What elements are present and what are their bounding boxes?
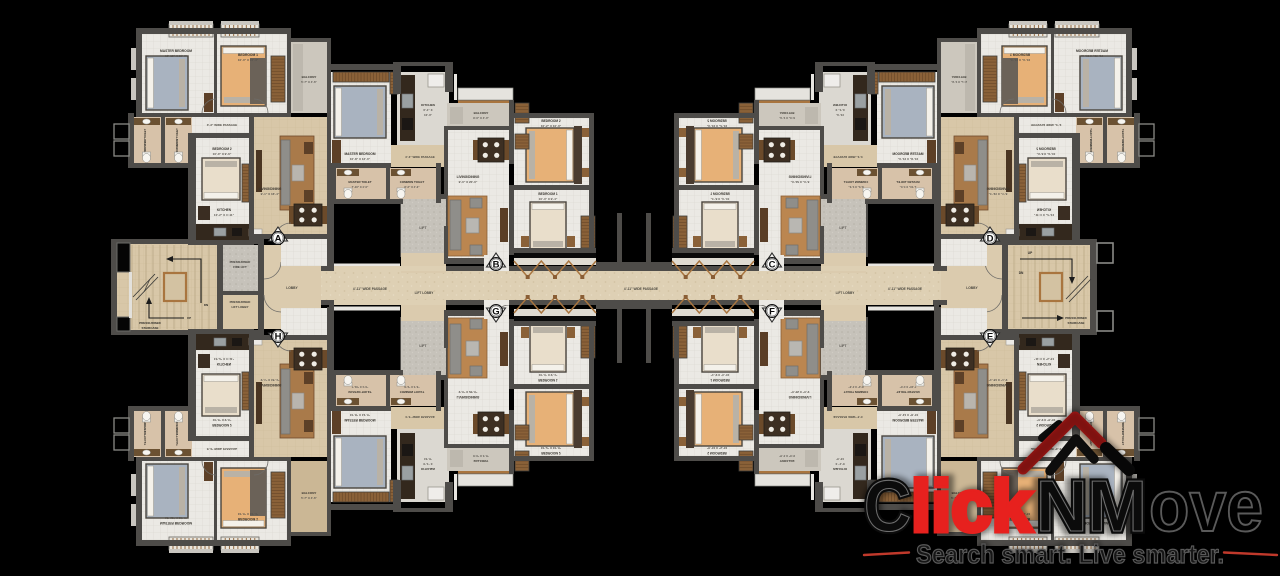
- svg-text:LIFT LOBBY: LIFT LOBBY: [231, 305, 248, 309]
- svg-text:KITCHEN: KITCHEN: [217, 208, 232, 212]
- svg-text:BALCONY: BALCONY: [474, 111, 489, 115]
- svg-text:10’-0” X 10’-4”: 10’-0” X 10’-4”: [238, 58, 259, 62]
- svg-text:BALCONY: BALCONY: [302, 491, 317, 495]
- svg-text:F: F: [769, 306, 775, 317]
- svg-text:3’-3” WIDE PASSAGE: 3’-3” WIDE PASSAGE: [405, 155, 435, 159]
- svg-text:PRESSURISED: PRESSURISED: [139, 321, 161, 325]
- svg-text:5’-7” X 4’-6”: 5’-7” X 4’-6”: [301, 496, 317, 500]
- svg-text:4’-11” WIDE PASSAGE: 4’-11” WIDE PASSAGE: [624, 287, 658, 291]
- svg-text:10’-11” X 10’-4”: 10’-11” X 10’-4”: [165, 54, 187, 58]
- svg-text:10’-2” X 10’-0”: 10’-2” X 10’-0”: [541, 124, 562, 128]
- svg-text:H: H: [275, 331, 282, 342]
- svg-text:FIRE LIFT: FIRE LIFT: [233, 265, 247, 269]
- svg-text:BEDROOM 2: BEDROOM 2: [541, 119, 561, 123]
- svg-text:D: D: [987, 233, 994, 244]
- svg-text:LIFT: LIFT: [839, 344, 847, 348]
- svg-text:7’-5” X 4’-0”: 7’-5” X 4’-0”: [143, 137, 147, 152]
- svg-text:9’-0” X 4’-0”: 9’-0” X 4’-0”: [473, 116, 489, 120]
- svg-text:3’-3” WIDE PASSAGE: 3’-3” WIDE PASSAGE: [207, 123, 238, 127]
- svg-text:DN: DN: [1019, 271, 1024, 275]
- svg-text:G: G: [492, 306, 499, 317]
- svg-text:PRESSURISED: PRESSURISED: [230, 300, 251, 304]
- svg-text:9’-1” X 16’-4”: 9’-1” X 16’-4”: [261, 192, 280, 196]
- svg-text:LOBBY: LOBBY: [286, 286, 298, 290]
- svg-text:BEDROOM 2: BEDROOM 2: [212, 147, 232, 151]
- svg-text:LIVING/DINING: LIVING/DINING: [457, 175, 480, 179]
- svg-text:A: A: [275, 233, 282, 244]
- svg-text:BEDROOM 1: BEDROOM 1: [238, 53, 258, 57]
- svg-text:STAIRCASE: STAIRCASE: [141, 326, 158, 330]
- svg-text:4’-11” WIDE PASSAGE: 4’-11” WIDE PASSAGE: [353, 287, 387, 291]
- svg-text:BALCONY: BALCONY: [302, 75, 317, 79]
- svg-text:6’-1” X: 6’-1” X: [423, 108, 432, 112]
- svg-text:10’-3”: 10’-3”: [424, 113, 433, 117]
- svg-text:10’-8” X 12’-0”: 10’-8” X 12’-0”: [350, 157, 371, 161]
- svg-text:MASTER TOILET: MASTER TOILET: [348, 180, 371, 184]
- svg-text:LIFT LOBBY: LIFT LOBBY: [415, 291, 435, 295]
- svg-text:BEDROOM 1: BEDROOM 1: [538, 192, 558, 196]
- svg-text:MASTER BEDROOM: MASTER BEDROOM: [160, 49, 192, 53]
- svg-text:STAIRCASE: STAIRCASE: [1067, 321, 1084, 325]
- svg-text:COMMON TOILET: COMMON TOILET: [400, 180, 425, 184]
- svg-text:lick: lick: [911, 467, 1033, 547]
- svg-text:LIVING/DINING: LIVING/DINING: [259, 187, 282, 191]
- svg-text:PRESSURISED: PRESSURISED: [230, 260, 251, 264]
- svg-text:C: C: [769, 259, 776, 270]
- svg-text:C: C: [864, 467, 911, 547]
- svg-text:Search smart. Live smarter.: Search smart. Live smarter.: [916, 539, 1224, 569]
- svg-text:7’-10” X 4’-0”: 7’-10” X 4’-0”: [352, 185, 369, 189]
- svg-text:E: E: [987, 331, 993, 342]
- svg-text:10’-4” X 9’-4”: 10’-4” X 9’-4”: [539, 197, 558, 201]
- svg-text:LIFT: LIFT: [839, 226, 847, 230]
- svg-text:5’-7” X 4’-6”: 5’-7” X 4’-6”: [301, 80, 317, 84]
- svg-text:KITCHEN: KITCHEN: [421, 103, 436, 107]
- svg-text:PRESSURISED: PRESSURISED: [1065, 316, 1087, 320]
- svg-text:MASTER BEDROOM: MASTER BEDROOM: [345, 152, 376, 156]
- svg-text:LOBBY: LOBBY: [966, 286, 978, 290]
- svg-text:NM: NM: [1036, 467, 1147, 547]
- svg-text:LIFT LOBBY: LIFT LOBBY: [836, 291, 856, 295]
- svg-text:10’-0” X 9’-6”: 10’-0” X 9’-6”: [213, 152, 232, 156]
- svg-text:UP: UP: [187, 316, 191, 320]
- svg-text:10’-2” X 4’-11”: 10’-2” X 4’-11”: [214, 213, 235, 217]
- svg-text:B: B: [493, 259, 500, 270]
- svg-text:DN: DN: [204, 303, 208, 307]
- svg-text:ove: ove: [1149, 467, 1263, 547]
- svg-text:8’-2” X 4’-0”: 8’-2” X 4’-0”: [404, 185, 420, 189]
- svg-text:7’-5” X 4’-0”: 7’-5” X 4’-0”: [175, 137, 179, 152]
- svg-text:LIFT: LIFT: [419, 226, 427, 230]
- svg-text:4’-11” WIDE PASSAGE: 4’-11” WIDE PASSAGE: [888, 287, 922, 291]
- svg-text:9’-0” X 20’-0”: 9’-0” X 20’-0”: [459, 180, 478, 184]
- svg-text:LIFT: LIFT: [419, 344, 427, 348]
